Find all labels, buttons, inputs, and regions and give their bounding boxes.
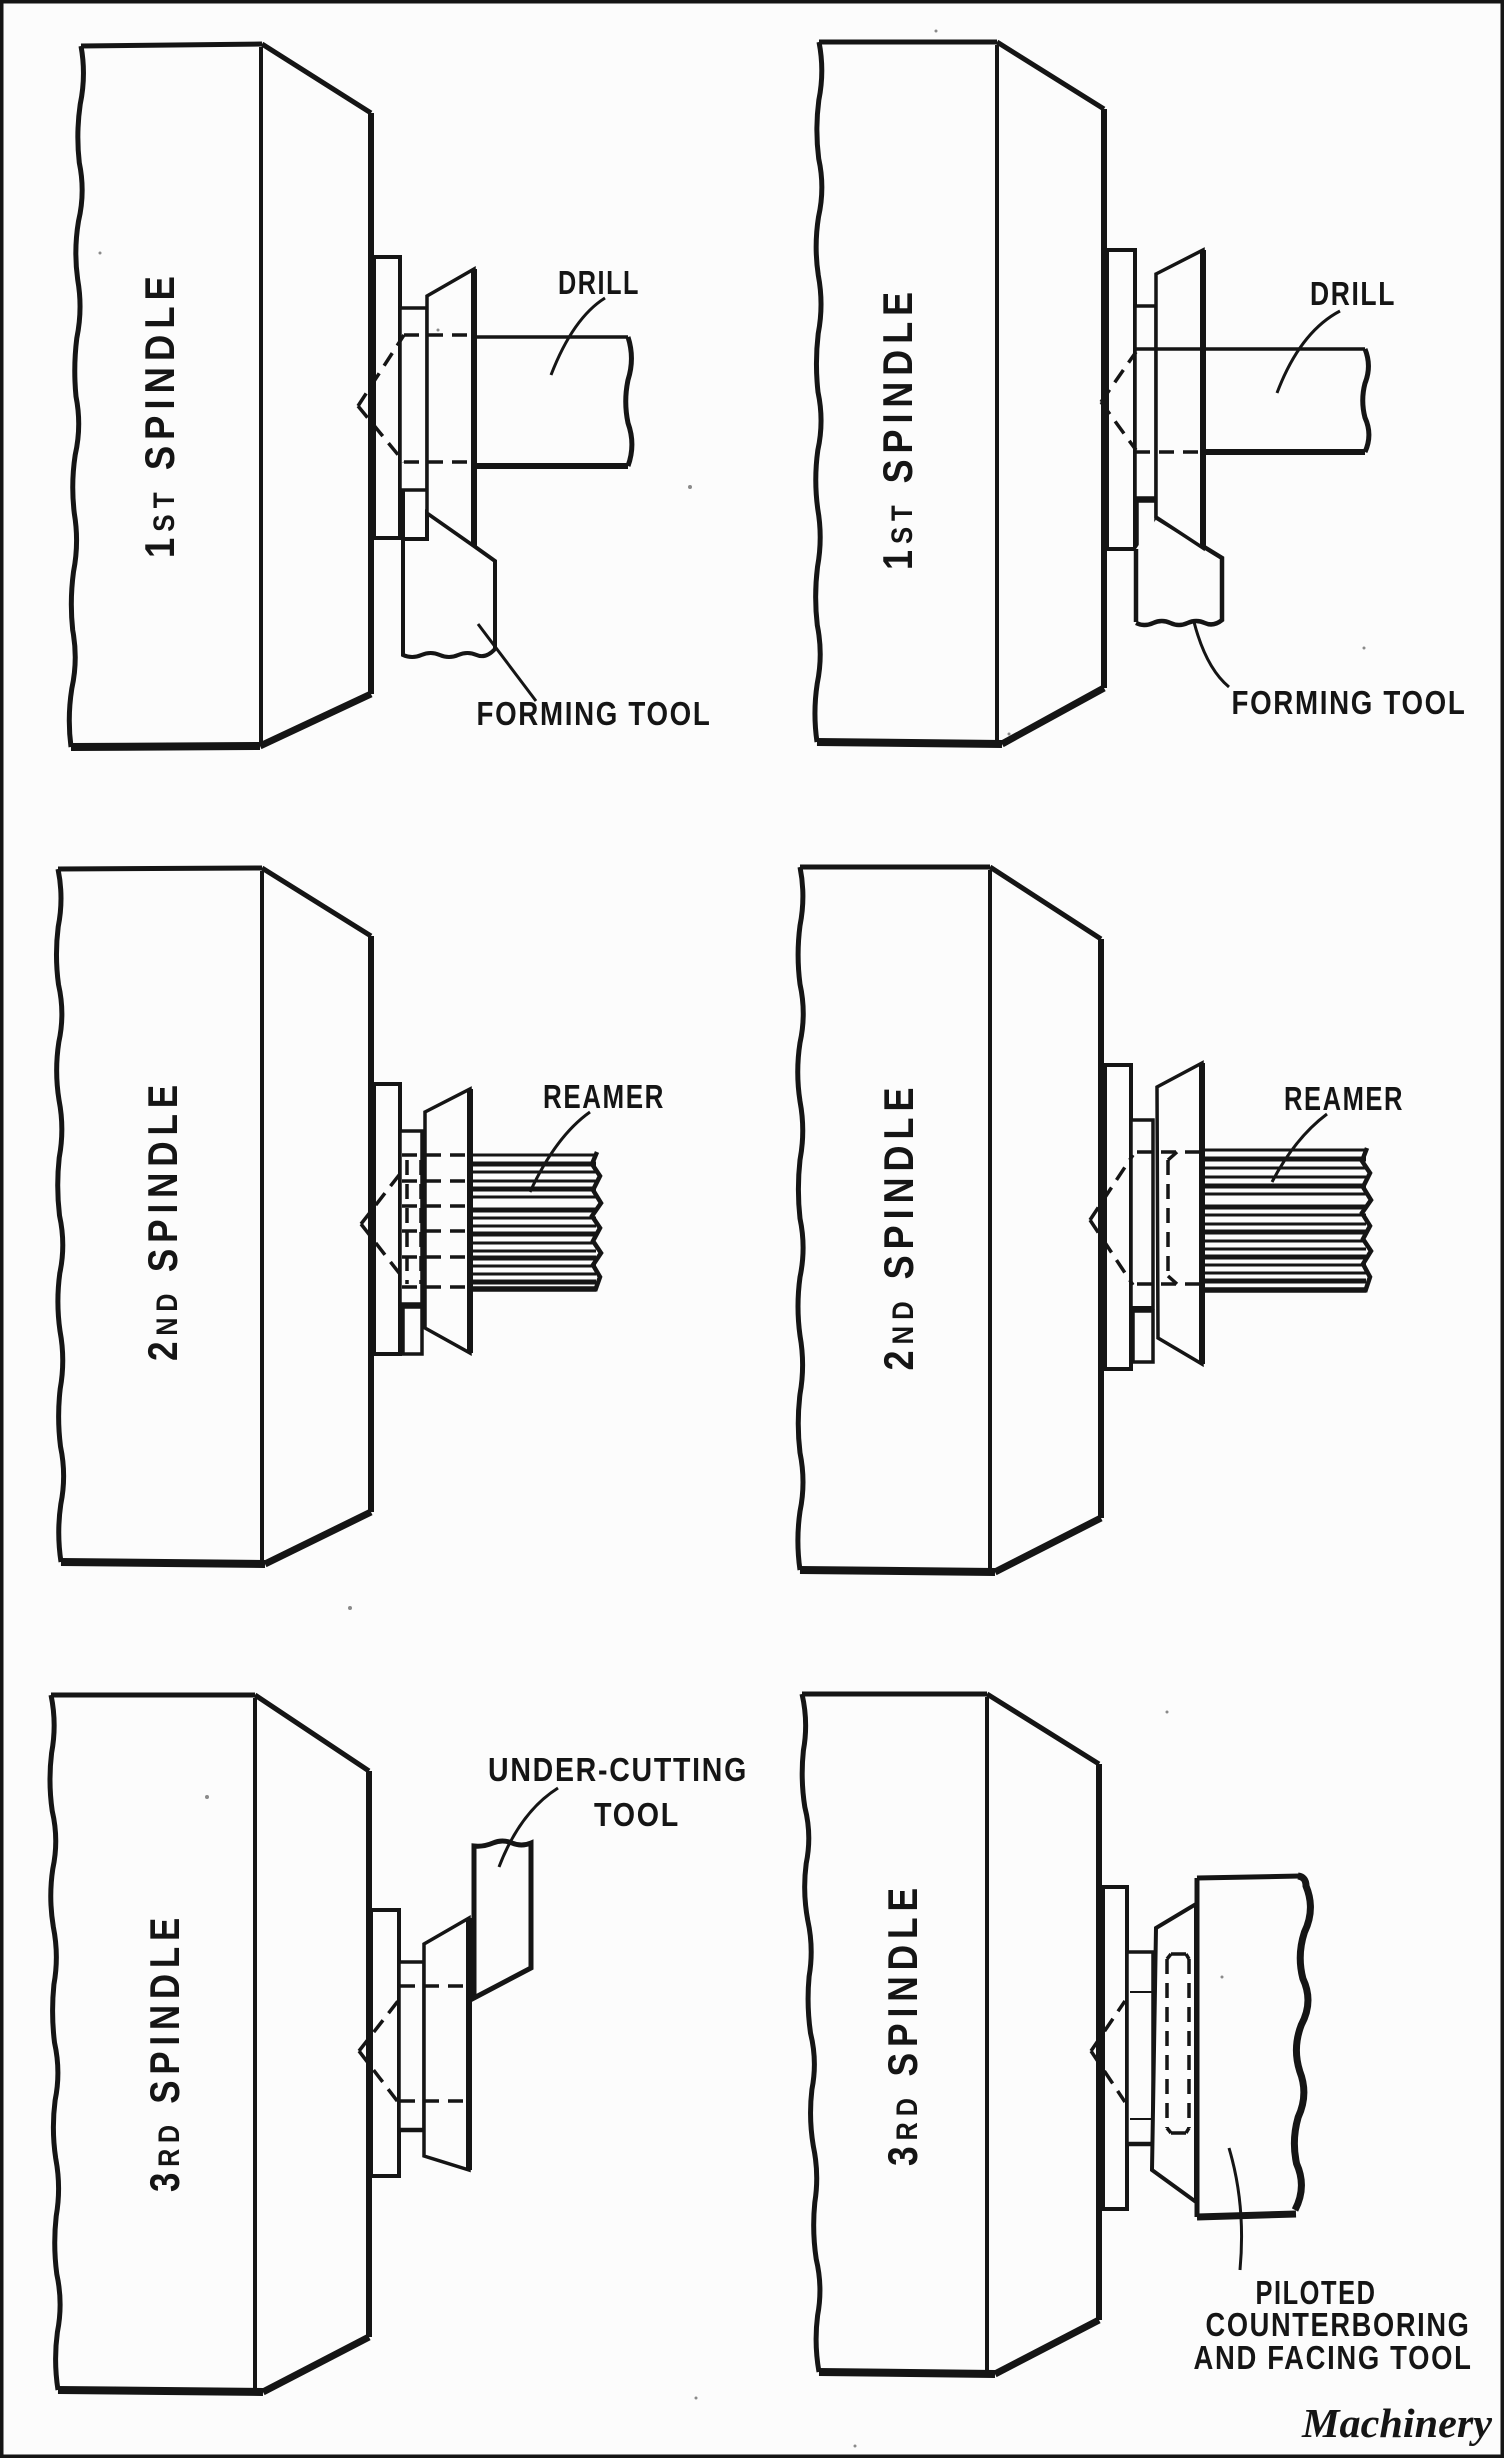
svg-text:FORMING TOOL: FORMING TOOL [1232,684,1467,721]
svg-text:FORMING TOOL: FORMING TOOL [477,695,712,732]
svg-text:AND FACING TOOL: AND FACING TOOL [1194,2339,1473,2376]
svg-text:DRILL: DRILL [1310,275,1396,312]
svg-text:COUNTERBORING: COUNTERBORING [1206,2306,1471,2343]
svg-text:TOOL: TOOL [594,1796,680,1833]
svg-text:REAMER: REAMER [1284,1080,1404,1117]
svg-text:Machinery: Machinery [1301,2400,1493,2446]
svg-text:UNDER-CUTTING: UNDER-CUTTING [488,1751,748,1788]
svg-text:REAMER: REAMER [543,1078,665,1115]
svg-text:DRILL: DRILL [558,264,640,301]
